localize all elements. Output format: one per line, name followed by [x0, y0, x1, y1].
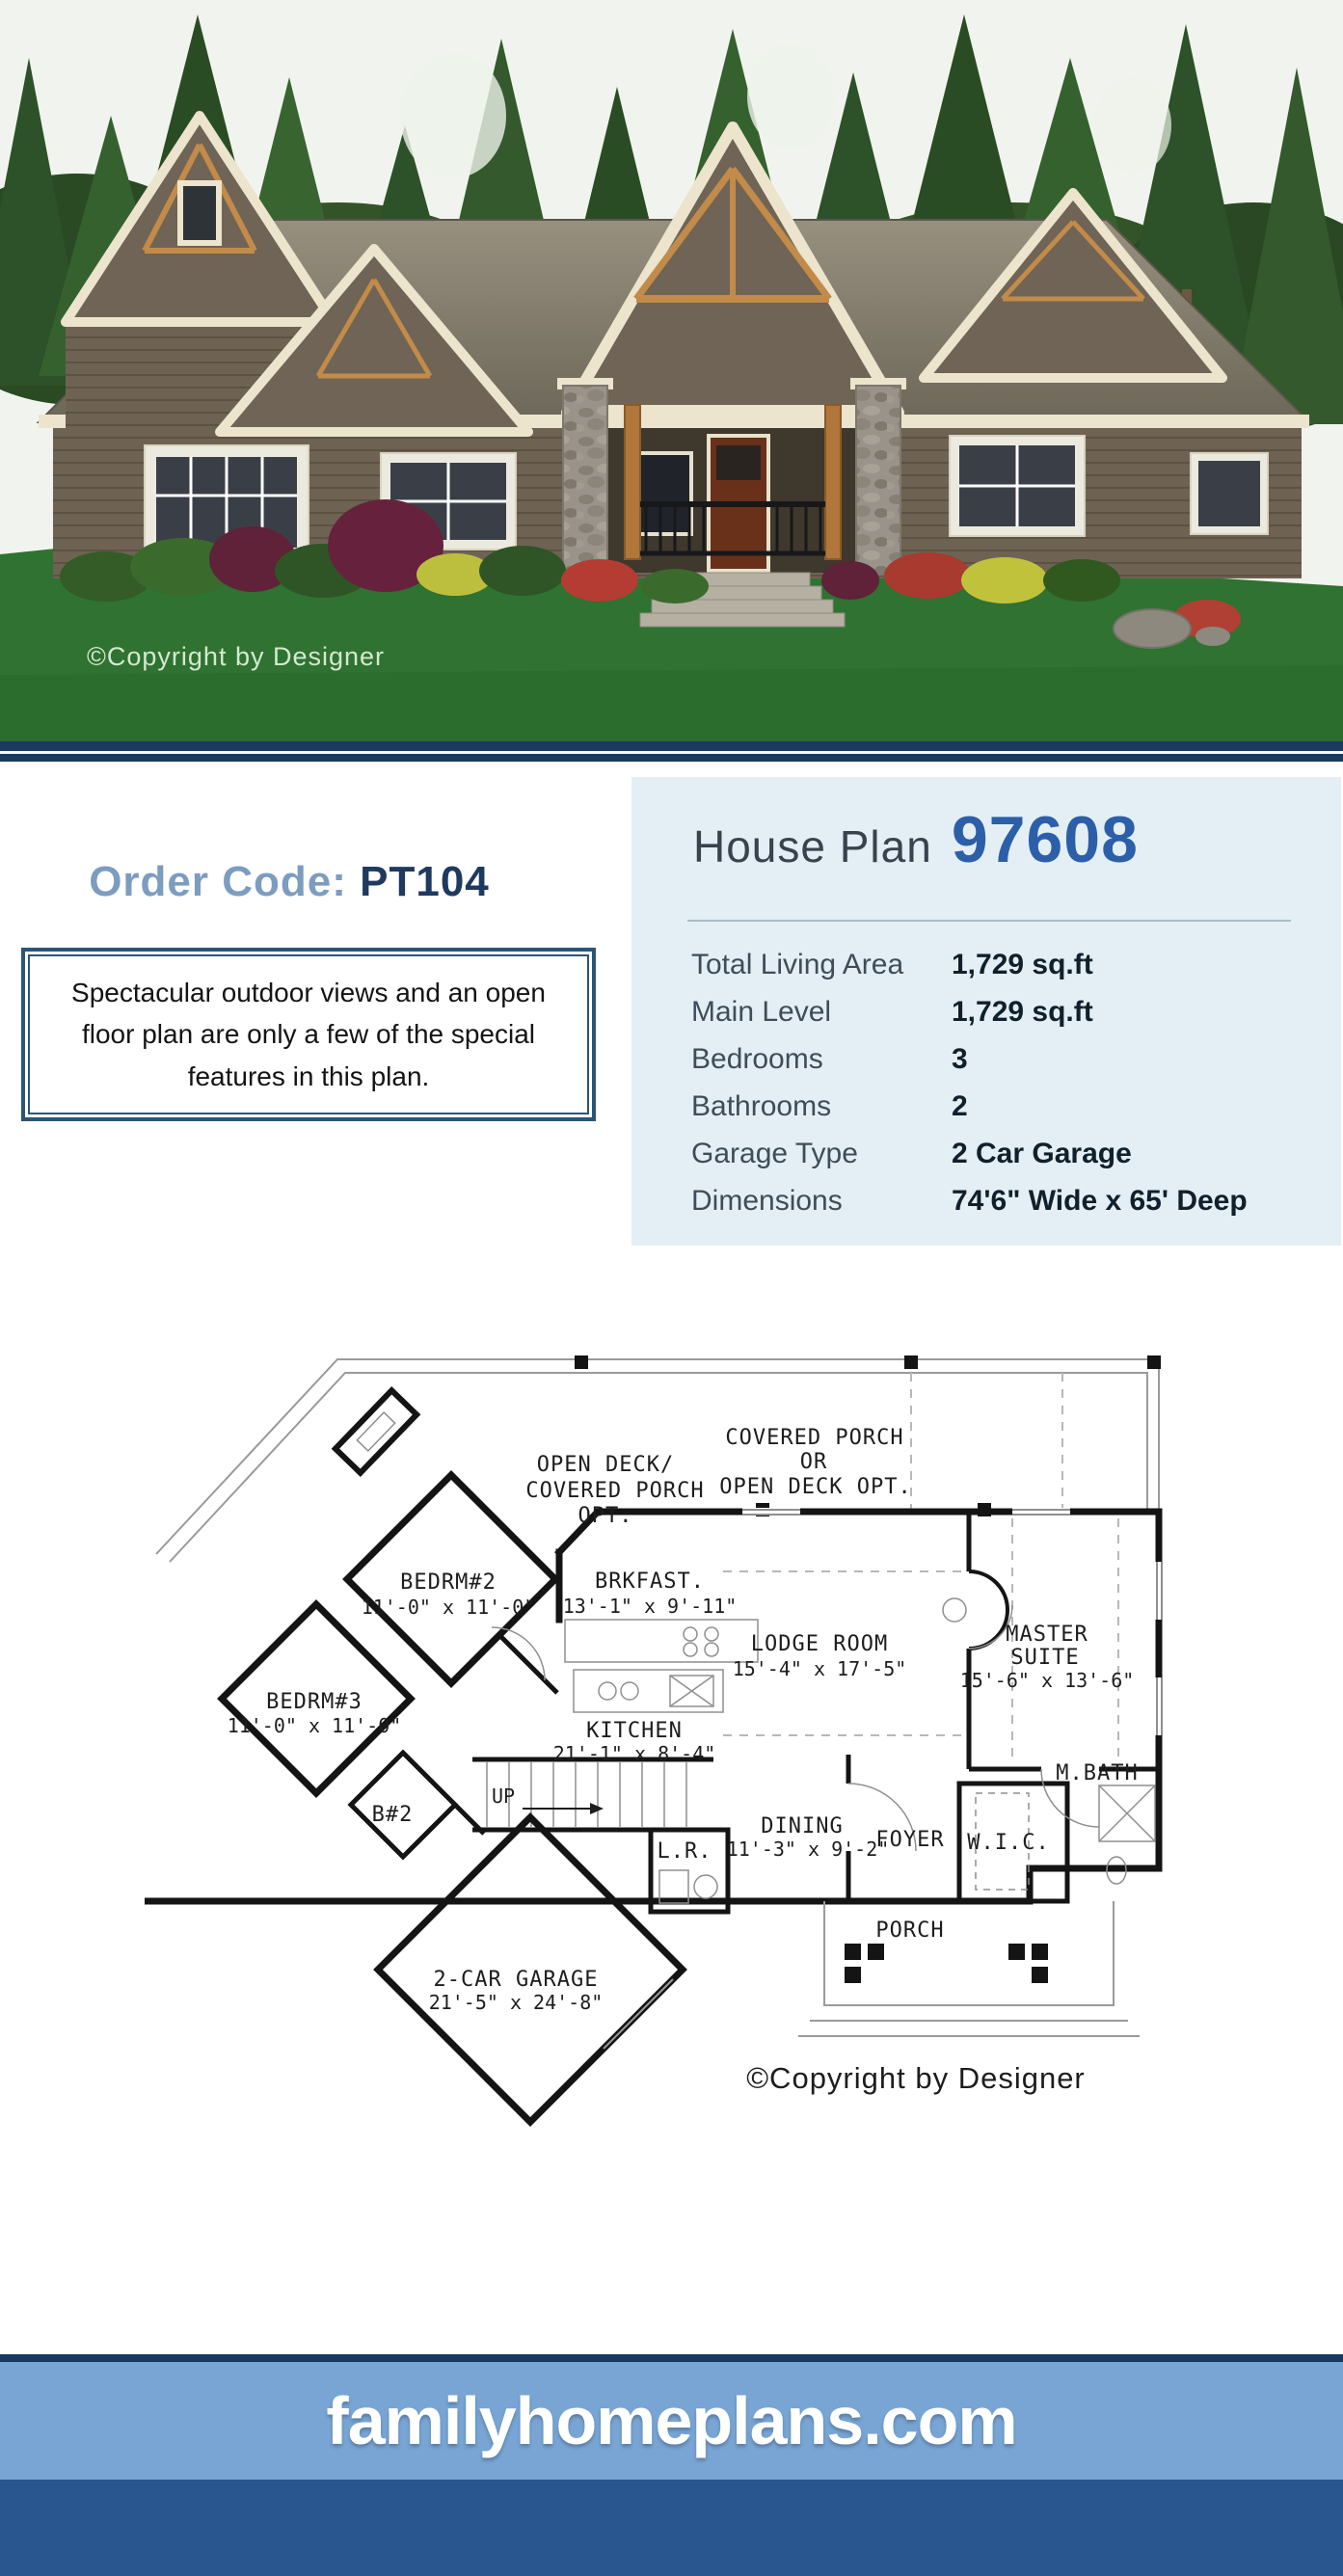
spec-value: 74'6" Wide x 65' Deep [952, 1185, 1248, 1218]
label-open-deck: OPT. [578, 1504, 633, 1528]
label-covered-porch: OPEN DECK OPT. [719, 1475, 911, 1499]
kitchen-fixtures [565, 1620, 758, 1712]
stone-column-right [856, 386, 900, 575]
label-open-deck: COVERED PORCH [525, 1479, 704, 1503]
panel-divider-line [687, 920, 1291, 922]
outdoor-fireplace [336, 1390, 416, 1472]
spec-label: Bedrooms [691, 1043, 952, 1076]
spec-row: Garage Type 2 Car Garage [691, 1130, 1318, 1177]
spec-label: Total Living Area [691, 949, 952, 981]
entry-porch [557, 378, 906, 575]
spec-value: 2 Car Garage [952, 1138, 1132, 1170]
order-code-value: PT104 [360, 858, 490, 905]
spec-row: Bedrooms 3 [691, 1035, 1318, 1083]
label-brkfast: BRKFAST. [595, 1570, 705, 1594]
photo-copyright: ©Copyright by Designer [87, 642, 385, 671]
label-wic: W.I.C. [967, 1831, 1049, 1855]
spec-value: 2 [952, 1090, 968, 1123]
label-lr: L.R. [658, 1839, 712, 1864]
label-up: UP [492, 1784, 515, 1808]
section-divider [0, 741, 1343, 762]
label-foyer: FOYER [875, 1828, 944, 1852]
spec-label: Dimensions [691, 1185, 952, 1218]
spec-row: Bathrooms 2 [691, 1083, 1318, 1130]
stairs [487, 1762, 686, 1827]
floorplan: OPEN DECK/ COVERED PORCH OPT. COVERED PO… [145, 1330, 1167, 2150]
house-plan-page: ©Copyright by Designer Order Code: PT104… [0, 0, 1343, 2576]
footer-top-line [0, 2354, 1343, 2362]
plan-number: 97608 [952, 802, 1139, 877]
plan-title-prefix: House Plan [693, 820, 932, 872]
label-bedrm2-dims: 11'-0" x 11'-0" [362, 1596, 536, 1619]
label-master: SUITE [1010, 1646, 1079, 1670]
up-arrow [523, 1803, 604, 1814]
spec-label: Bathrooms [691, 1090, 952, 1123]
spec-row: Total Living Area 1,729 sq.ft [691, 941, 1318, 988]
label-master: MASTER [1006, 1623, 1088, 1647]
spec-label: Main Level [691, 996, 952, 1029]
label-garage-dims: 21'-5" x 24'-8" [429, 1991, 604, 2014]
attic-window [180, 183, 219, 243]
label-lodge-dims: 15'-4" x 17'-5" [733, 1657, 907, 1680]
description-box: Spectacular outdoor views and an open fl… [21, 948, 596, 1121]
lawn-shade [0, 665, 1343, 741]
label-mbath: M.BATH [1056, 1761, 1138, 1785]
label-covered-porch: COVERED PORCH [725, 1426, 903, 1450]
spec-value: 1,729 sq.ft [952, 949, 1093, 981]
floorplan-drawing: OPEN DECK/ COVERED PORCH OPT. COVERED PO… [145, 1330, 1167, 2150]
boulder [1114, 609, 1191, 648]
plan-summary-panel: House Plan 97608 Total Living Area 1,729… [631, 777, 1341, 1246]
window-right [950, 436, 1085, 536]
spec-row: Main Level 1,729 sq.ft [691, 988, 1318, 1035]
label-dining-dims: 11'-3" x 9'-2" [727, 1838, 890, 1861]
order-code-label: Order Code: [89, 858, 347, 905]
floorplan-copyright: ©Copyright by Designer [746, 2061, 1086, 2095]
label-b2: B#2 [372, 1803, 414, 1827]
info-section: Order Code: PT104 Spectacular outdoor vi… [0, 762, 1343, 1340]
spec-value: 1,729 sq.ft [952, 996, 1093, 1029]
label-porch: PORCH [875, 1919, 944, 1943]
porch-pillars [845, 1944, 1048, 1983]
label-kitchen: KITCHEN [586, 1719, 683, 1743]
stone-column-left [563, 386, 607, 575]
house-photo-art: ©Copyright by Designer [0, 0, 1343, 741]
footer-site-link[interactable]: familyhomeplans.com [326, 2382, 1016, 2459]
footer-banner: familyhomeplans.com [0, 2362, 1343, 2480]
spec-value: 3 [952, 1043, 968, 1076]
window-far-right [1191, 453, 1268, 534]
label-open-deck: OPEN DECK/ [537, 1453, 674, 1477]
garage-door-opening [596, 1968, 665, 2037]
label-kitchen-dims: 21'-1" x 8'-4" [553, 1742, 716, 1765]
description-text: Spectacular outdoor views and an open fl… [28, 954, 589, 1114]
spec-table: Total Living Area 1,729 sq.ft Main Level… [691, 941, 1318, 1224]
label-bedrm3: BEDRM#3 [266, 1690, 363, 1714]
label-brkfast-dims: 13'-1" x 9'-11" [563, 1595, 738, 1618]
label-garage: 2-CAR GARAGE [434, 1968, 599, 1992]
floorplan-labels: OPEN DECK/ COVERED PORCH OPT. COVERED PO… [228, 1426, 1139, 2095]
label-master-dims: 15'-6" x 13'-6" [960, 1669, 1135, 1692]
label-bedrm3-dims: 11'-0" x 11'-0" [228, 1714, 402, 1737]
lodge-fireplace [969, 1571, 1007, 1649]
plan-title: House Plan 97608 [693, 802, 1139, 877]
label-bedrm2: BEDRM#2 [400, 1570, 497, 1595]
wood-post-left [625, 405, 640, 559]
house-photo: ©Copyright by Designer [0, 0, 1343, 741]
label-lodge-room: LODGE ROOM [751, 1632, 888, 1656]
spec-label: Garage Type [691, 1138, 952, 1170]
label-dining: DINING [761, 1814, 843, 1838]
footer-bottom-band [0, 2480, 1343, 2576]
wood-post-right [825, 405, 841, 559]
spec-row: Dimensions 74'6" Wide x 65' Deep [691, 1177, 1318, 1224]
label-covered-porch: OR [800, 1450, 828, 1474]
order-code-line: Order Code: PT104 [0, 858, 578, 906]
